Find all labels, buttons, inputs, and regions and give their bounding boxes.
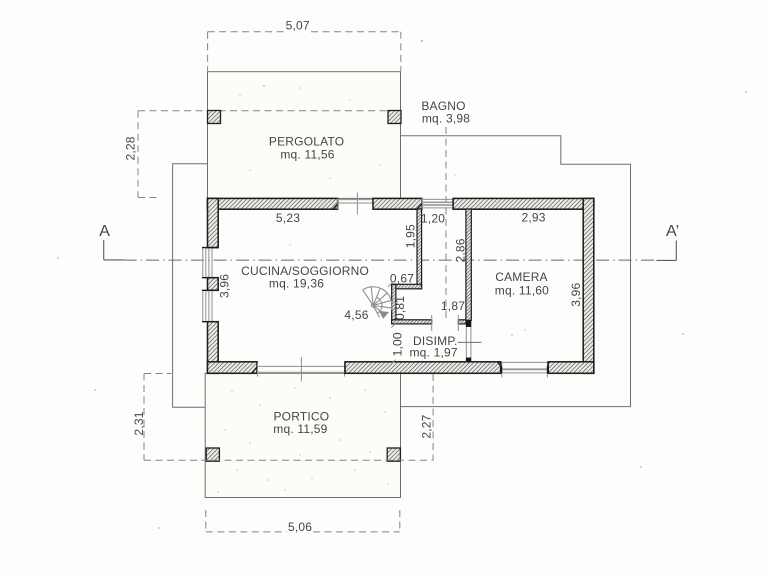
svg-text:mq. 11,60: mq. 11,60 <box>495 284 549 298</box>
svg-text:3,96: 3,96 <box>218 274 232 298</box>
svg-text:5,23: 5,23 <box>276 211 300 225</box>
svg-text:2,28: 2,28 <box>124 136 138 160</box>
svg-text:mq. 19,36: mq. 19,36 <box>269 277 324 291</box>
svg-text:5,06: 5,06 <box>288 520 312 534</box>
svg-text:2,93: 2,93 <box>522 211 546 225</box>
svg-text:mq. 3,98: mq. 3,98 <box>422 112 470 126</box>
svg-text:0,67: 0,67 <box>390 271 414 285</box>
svg-text:CAMERA: CAMERA <box>495 270 548 284</box>
svg-text:1,20: 1,20 <box>421 212 445 226</box>
svg-text:mq. 11,56: mq. 11,56 <box>280 148 334 162</box>
svg-text:1,87: 1,87 <box>441 299 465 313</box>
svg-text:A’: A’ <box>666 223 679 240</box>
svg-text:1,00: 1,00 <box>390 332 404 356</box>
svg-text:2,86: 2,86 <box>454 238 468 262</box>
svg-text:A: A <box>99 223 110 240</box>
svg-text:2,27: 2,27 <box>420 414 434 438</box>
svg-text:0,81: 0,81 <box>393 296 407 320</box>
svg-text:1,95: 1,95 <box>404 224 418 248</box>
svg-text:4,56: 4,56 <box>344 308 368 322</box>
svg-text:5,07: 5,07 <box>286 19 310 33</box>
svg-text:mq. 11,59: mq. 11,59 <box>273 422 327 436</box>
svg-text:2,31: 2,31 <box>132 411 146 435</box>
svg-text:3,96: 3,96 <box>569 282 583 306</box>
svg-text:PERGOLATO: PERGOLATO <box>269 135 344 149</box>
svg-text:mq. 1,97: mq. 1,97 <box>409 346 457 360</box>
